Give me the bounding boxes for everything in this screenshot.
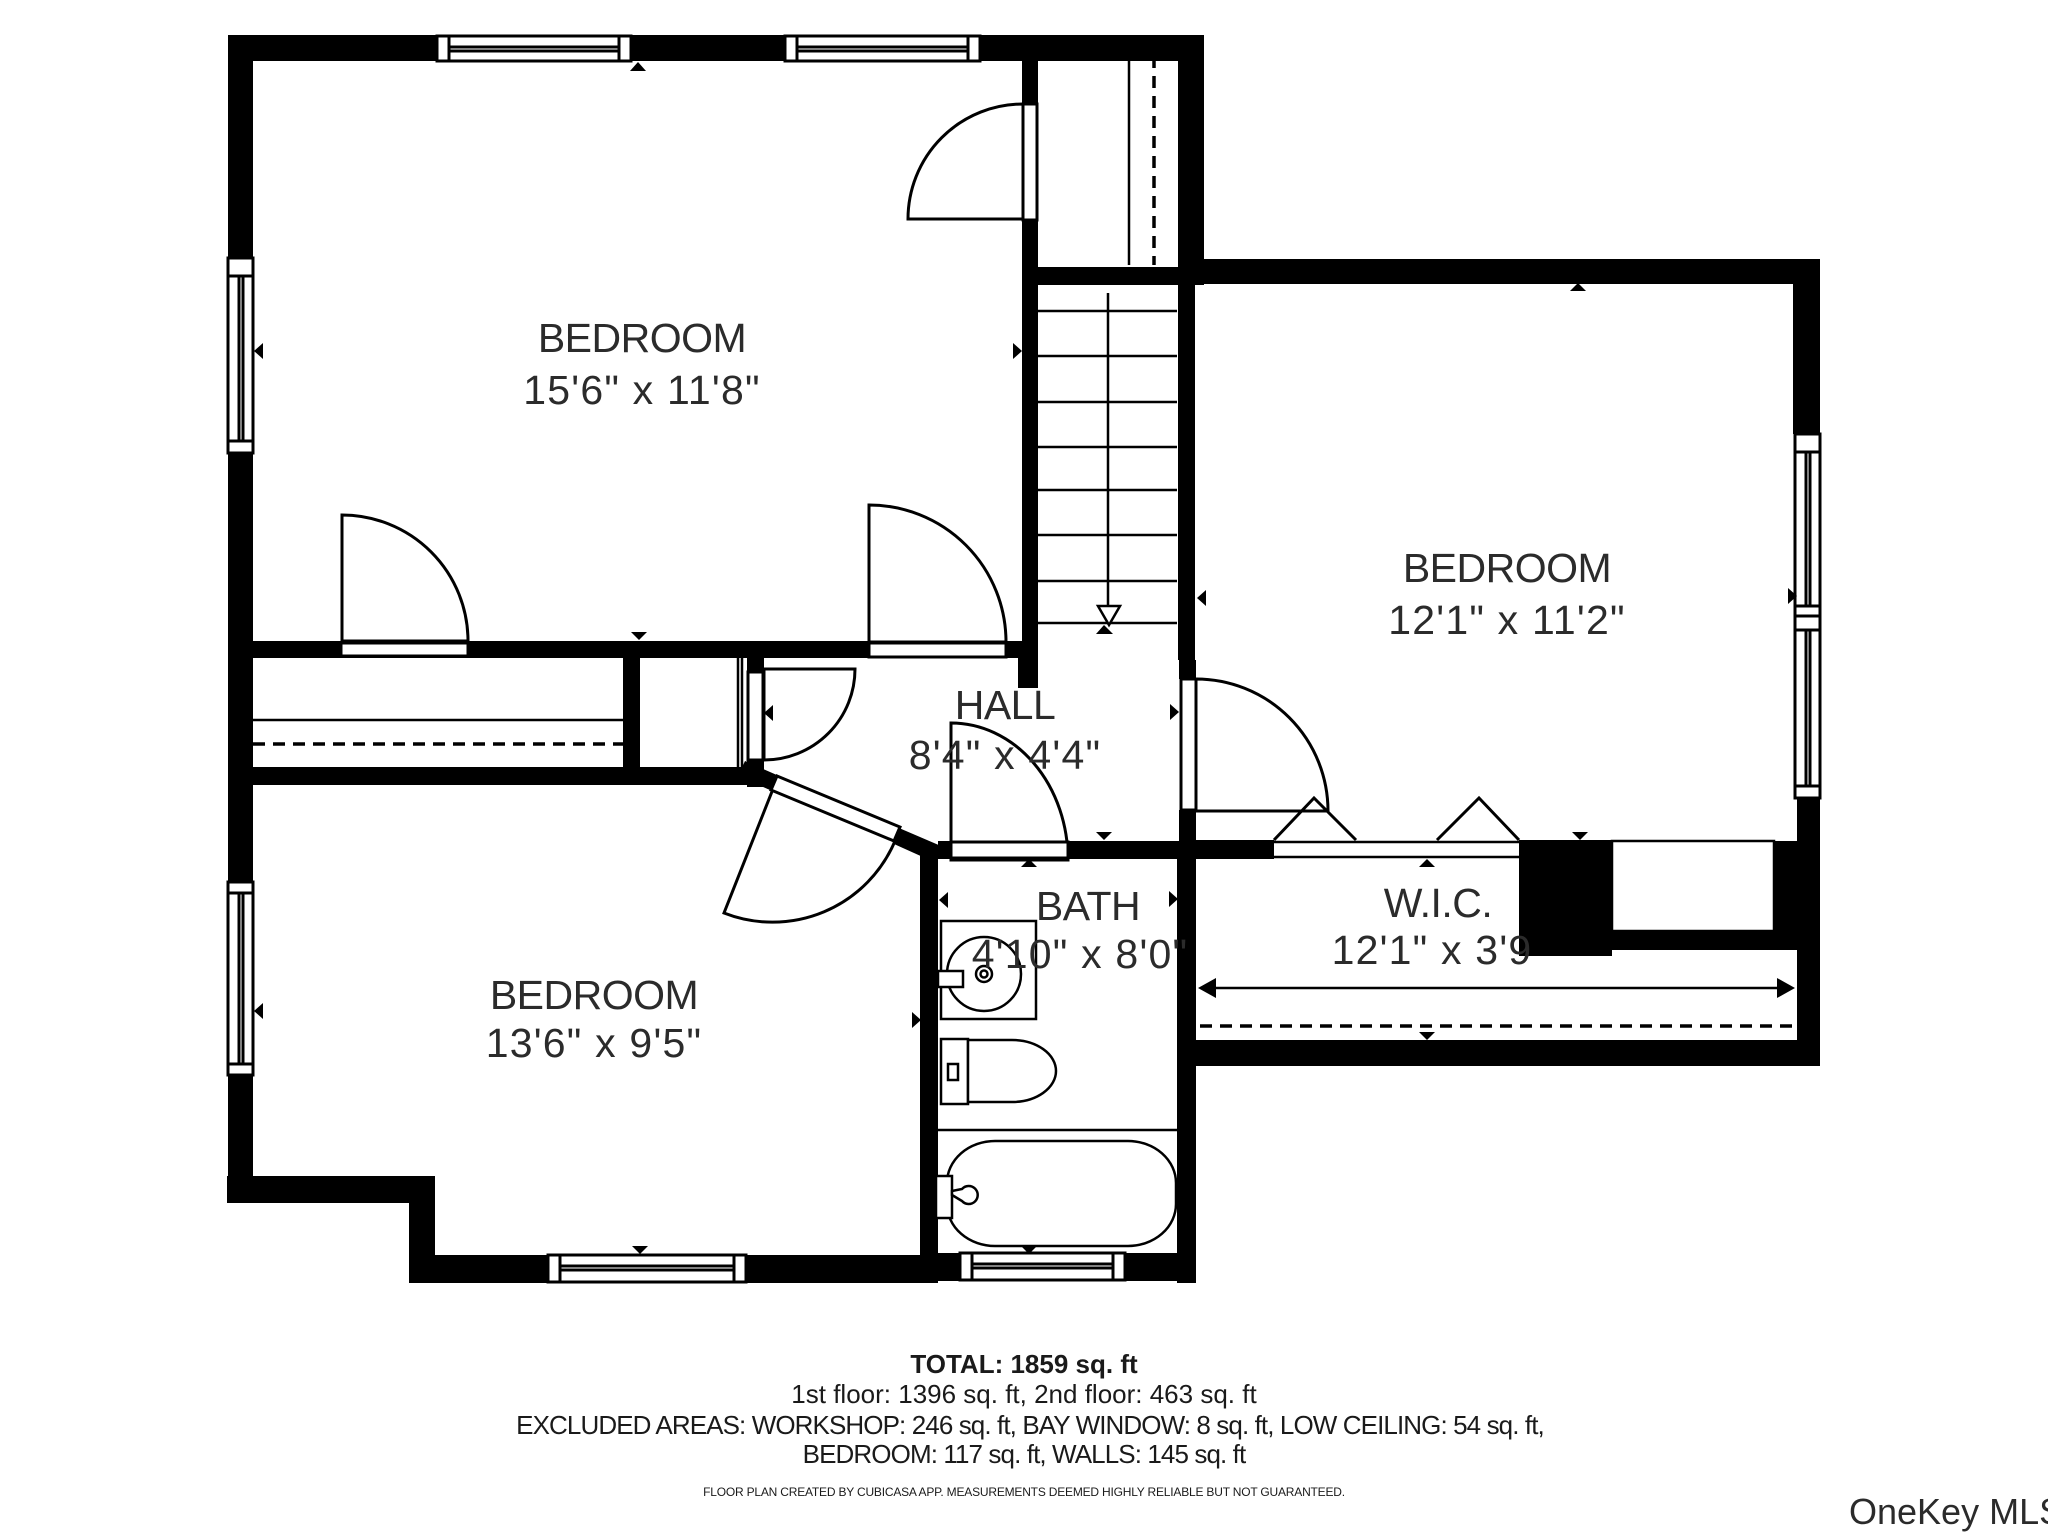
svg-text:4'10" x 8'0": 4'10" x 8'0" [972,931,1188,977]
svg-text:BEDROOM: BEDROOM [490,972,698,1018]
svg-text:HALL: HALL [955,682,1056,728]
svg-text:8'4" x 4'4": 8'4" x 4'4" [909,732,1101,778]
svg-text:12'1" x 3'9: 12'1" x 3'9 [1332,927,1533,973]
svg-text:BEDROOM: 117 sq. ft, WALLS: 14: BEDROOM: 117 sq. ft, WALLS: 145 sq. ft [803,1439,1247,1469]
svg-text:FLOOR PLAN CREATED BY CUBICASA: FLOOR PLAN CREATED BY CUBICASA APP. MEAS… [703,1485,1345,1499]
svg-text:TOTAL: 1859 sq. ft: TOTAL: 1859 sq. ft [910,1349,1138,1379]
svg-text:BEDROOM: BEDROOM [1403,545,1611,591]
svg-text:OneKey MLS: OneKey MLS [1849,1491,2048,1532]
svg-text:W.I.C.: W.I.C. [1384,880,1493,926]
svg-text:1st floor: 1396 sq. ft, 2nd fl: 1st floor: 1396 sq. ft, 2nd floor: 463 s… [791,1379,1257,1409]
svg-text:12'1" x 11'2": 12'1" x 11'2" [1388,597,1625,643]
svg-text:EXCLUDED AREAS: WORKSHOP: 246: EXCLUDED AREAS: WORKSHOP: 246 sq. ft, BA… [516,1410,1544,1440]
svg-text:BEDROOM: BEDROOM [538,315,746,361]
svg-text:13'6" x 9'5": 13'6" x 9'5" [486,1020,702,1066]
svg-text:BATH: BATH [1036,883,1140,929]
svg-text:15'6" x 11'8": 15'6" x 11'8" [523,367,760,413]
